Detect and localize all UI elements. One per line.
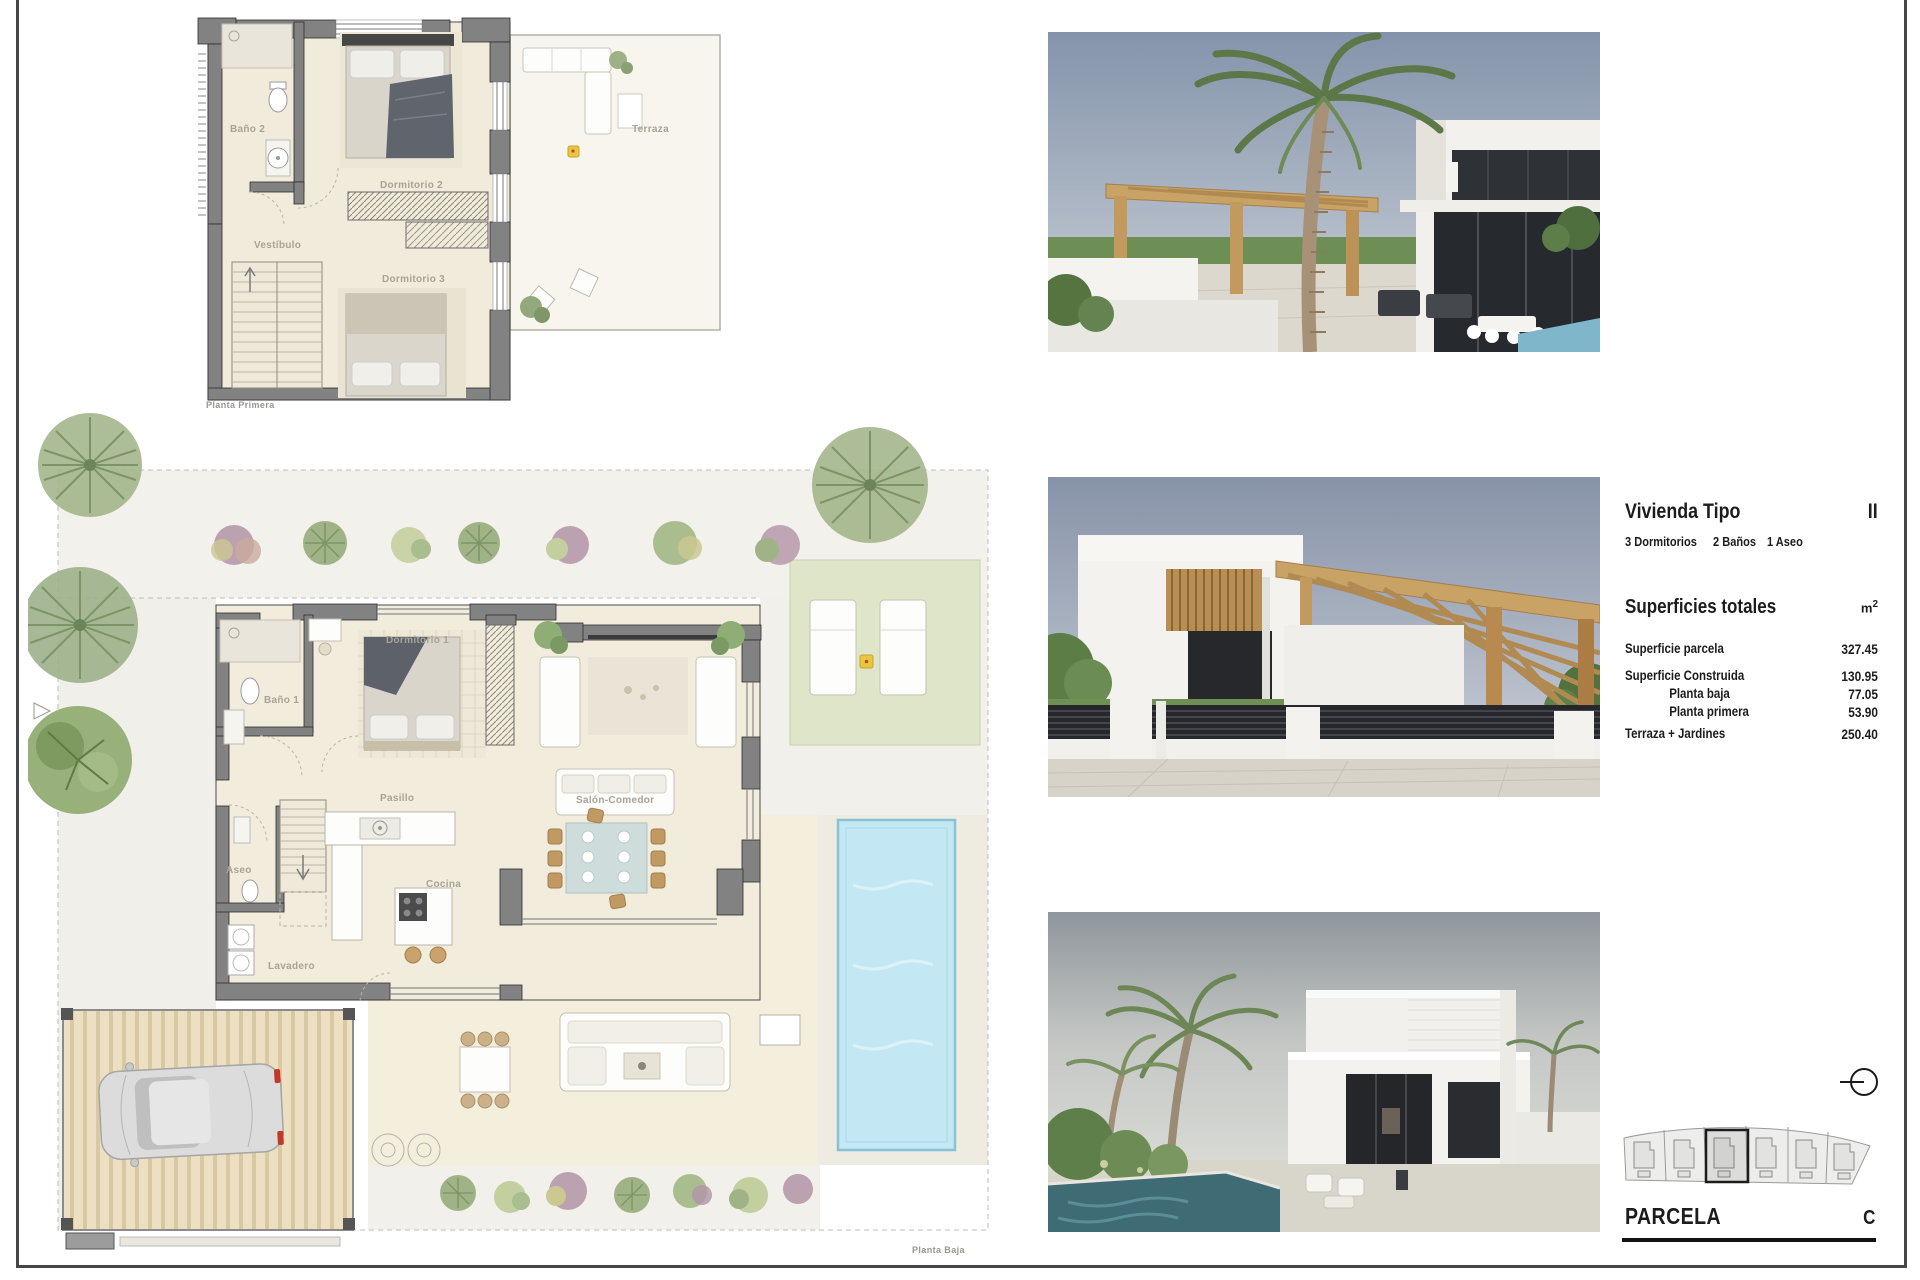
render-exterior-front bbox=[1048, 32, 1600, 352]
outdoor-lounge bbox=[560, 1013, 730, 1091]
wardrobe bbox=[348, 192, 488, 220]
wardrobe bbox=[406, 222, 488, 248]
inner-wall bbox=[1284, 625, 1464, 717]
parcel-code: C bbox=[1863, 1207, 1875, 1230]
room-label-vestibulo: Vestíbulo bbox=[254, 240, 301, 251]
room-label-pasillo: Pasillo bbox=[380, 793, 414, 804]
render-exterior-pergola bbox=[1048, 477, 1600, 797]
floor-plan-planta-baja: Baño 1 Dormitorio 1 bbox=[28, 385, 1008, 1260]
feature-toilet: 1 Aseo bbox=[1767, 534, 1803, 550]
outdoor-dining bbox=[460, 1032, 510, 1108]
room-label-bano2: Baño 2 bbox=[230, 124, 265, 135]
wardrobe bbox=[486, 625, 514, 745]
render-exterior-garden bbox=[1048, 912, 1600, 1232]
pool bbox=[838, 820, 955, 1150]
pavement bbox=[1048, 759, 1600, 797]
surfaces-unit: m2 bbox=[1861, 599, 1878, 615]
room-label-aseo: Aseo bbox=[226, 865, 252, 876]
surface-row: Superficie parcela 327.45 bbox=[1625, 641, 1878, 657]
info-panel: Vivienda Tipo II 3 Dormitorios 2 Baños 1… bbox=[1625, 500, 1878, 742]
staircase bbox=[232, 262, 322, 388]
room-label-dormitorio2: Dormitorio 2 bbox=[380, 180, 443, 191]
pool bbox=[1048, 1172, 1280, 1232]
terrace-area: Terraza bbox=[510, 35, 720, 330]
room-label-lavadero: Lavadero bbox=[268, 961, 315, 972]
plan-caption-planta-baja: Planta Baja bbox=[912, 1245, 965, 1255]
carport bbox=[61, 1008, 355, 1249]
room-label-salon: Salón-Comedor bbox=[576, 795, 654, 806]
facade-ticks bbox=[198, 54, 206, 215]
panel-title: Vivienda Tipo bbox=[1625, 500, 1740, 524]
surface-row: Planta baja 77.05 bbox=[1625, 686, 1878, 702]
feature-bathrooms: 2 Baños bbox=[1713, 534, 1756, 550]
room-label-bano1: Baño 1 bbox=[264, 695, 299, 706]
surfaces-title: Superficies totales bbox=[1625, 596, 1776, 619]
car bbox=[97, 1055, 284, 1168]
room-label-dormitorio1: Dormitorio 1 bbox=[386, 635, 449, 646]
outdoor-door bbox=[760, 1015, 800, 1045]
outdoor-kitchen bbox=[1378, 290, 1420, 316]
room-label-terraza: Terraza bbox=[632, 124, 669, 135]
lawn-loungers bbox=[790, 560, 980, 745]
parcel-underline bbox=[1622, 1238, 1876, 1242]
bed-dormitorio-2: Dormitorio 2 bbox=[340, 32, 462, 191]
surface-row: Planta primera 53.90 bbox=[1625, 704, 1878, 720]
room-label-cocina: Cocina bbox=[426, 879, 461, 890]
room-label-dormitorio3: Dormitorio 3 bbox=[382, 274, 445, 285]
bed-dormitorio-3: Dormitorio 3 bbox=[338, 274, 466, 398]
compass-icon bbox=[1838, 1062, 1882, 1102]
type-code: II bbox=[1868, 500, 1878, 524]
parcel-label: PARCELA bbox=[1625, 1203, 1721, 1230]
feature-bedrooms: 3 Dormitorios bbox=[1625, 534, 1697, 550]
parcel-row: PARCELA C bbox=[1625, 1203, 1875, 1230]
floor-plan-planta-primera: Terraza bbox=[190, 10, 725, 410]
tree bbox=[28, 706, 132, 814]
surface-row: Superficie Construida 130.95 bbox=[1625, 668, 1878, 684]
site-plan bbox=[1616, 1118, 1878, 1202]
surface-row: Terraza + Jardines 250.40 bbox=[1625, 726, 1878, 742]
